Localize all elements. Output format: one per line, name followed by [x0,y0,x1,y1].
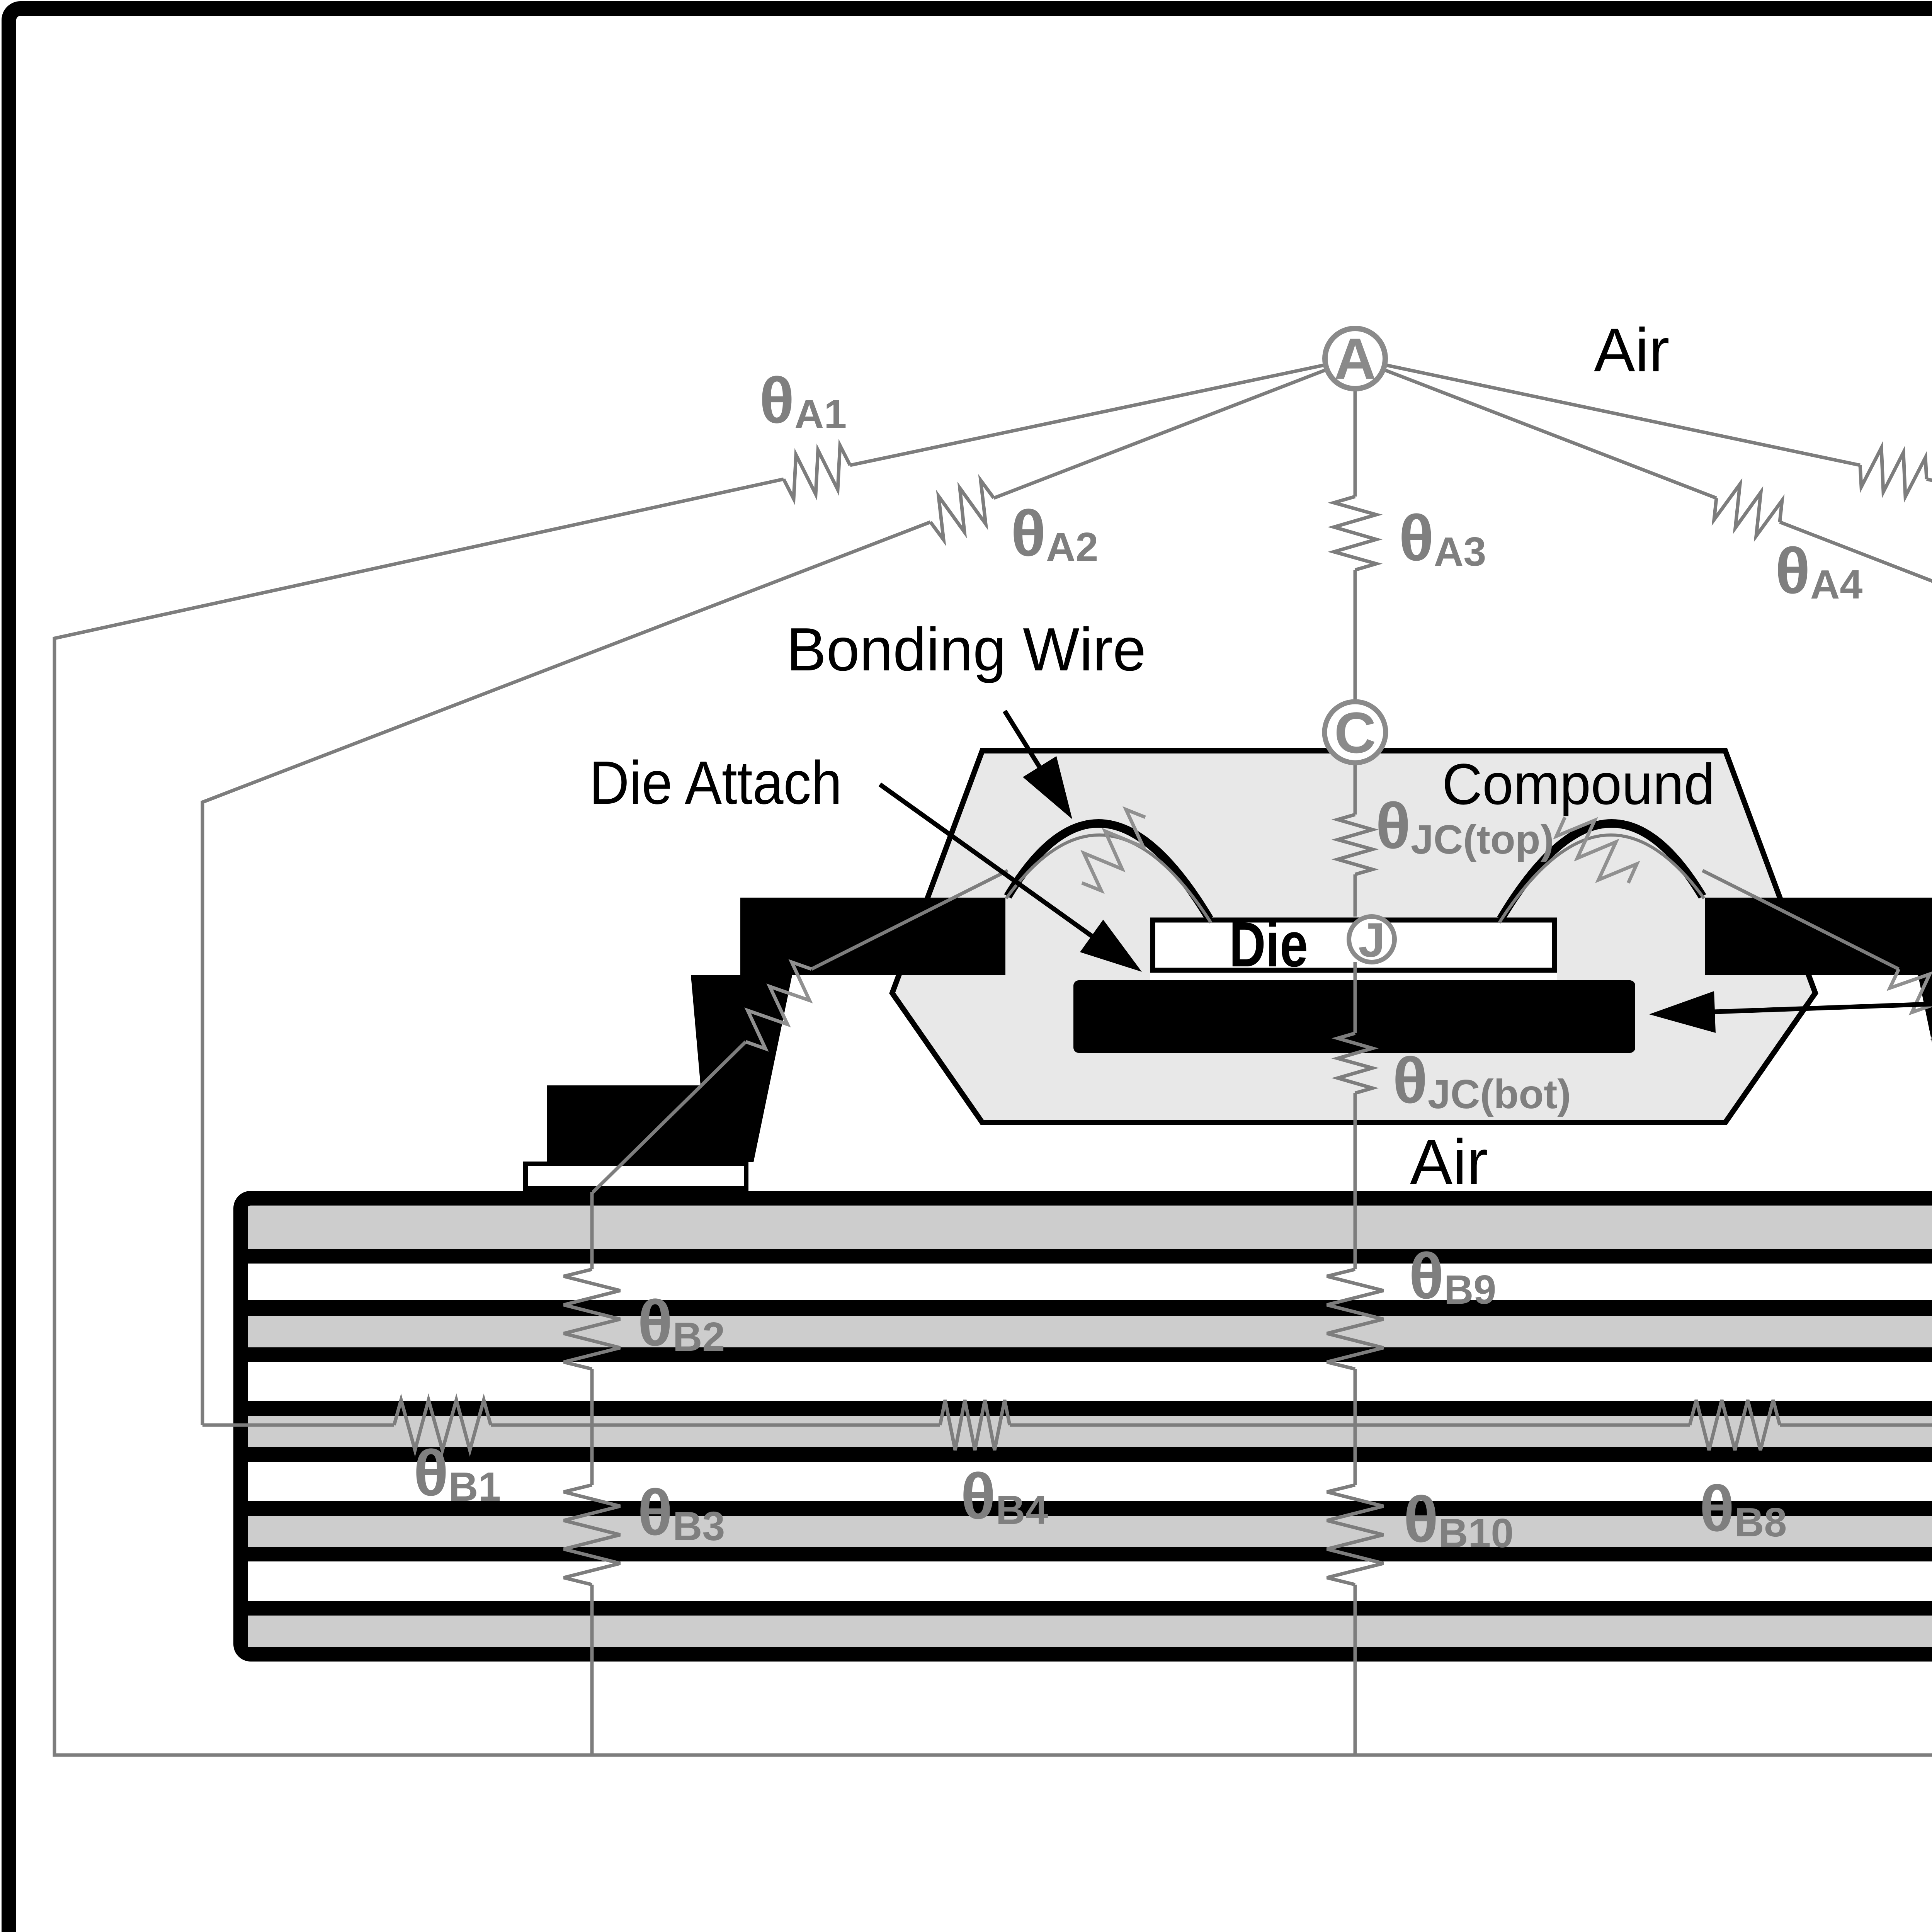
svg-text:θA1: θA1 [759,364,847,437]
svg-text:Air: Air [1594,315,1670,384]
svg-text:Die Attach: Die Attach [589,749,842,817]
svg-text:θA3: θA3 [1399,502,1486,575]
svg-text:Die: Die [1229,909,1308,980]
svg-text:θA4: θA4 [1775,534,1862,607]
svg-text:Compound: Compound [1442,752,1715,816]
svg-text:A: A [1334,326,1376,391]
svg-text:J: J [1358,913,1385,967]
svg-text:C: C [1334,700,1376,765]
svg-text:Air: Air [1410,1126,1488,1197]
svg-text:θA2: θA2 [1011,497,1098,570]
svg-text:Bonding Wire: Bonding Wire [786,616,1146,684]
